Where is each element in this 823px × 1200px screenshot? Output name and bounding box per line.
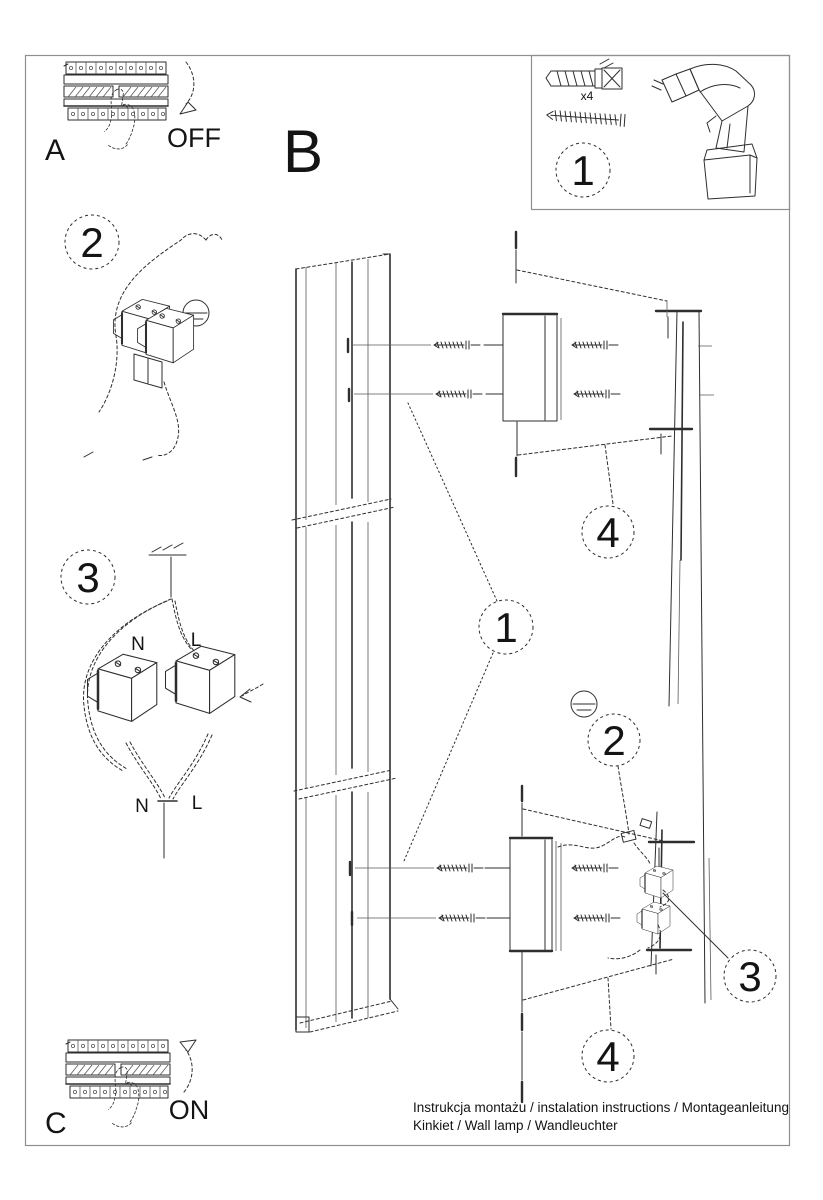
instruction-sheet: A OFF B x4 1	[0, 0, 823, 1200]
upper-mounting-assembly: 4	[434, 232, 714, 558]
section-label-c: C	[45, 1107, 67, 1140]
hand-icon	[108, 1067, 138, 1127]
section-label-a: A	[45, 134, 65, 167]
callout-4-lower: 4	[596, 1033, 619, 1080]
screw-lower-1	[437, 864, 483, 872]
page-border	[26, 56, 790, 1146]
callout-1-group: 1	[404, 403, 533, 861]
breaker-on-label: ON	[169, 1095, 210, 1125]
callout-1: 1	[494, 604, 517, 651]
dimension-lines	[352, 345, 436, 918]
screw-upper-1	[434, 341, 480, 349]
terminal-block-neutral	[88, 654, 157, 721]
label-live-top: L	[191, 630, 202, 651]
section-label-b: B	[283, 118, 323, 185]
flat-screwdriver-icon	[571, 691, 597, 717]
screw-upper-2	[436, 390, 482, 398]
section-a-power-off: A OFF	[45, 62, 221, 167]
label-neutral-top: N	[131, 634, 145, 655]
screw-upper-4	[574, 390, 620, 398]
callout-2-group: 2	[571, 691, 640, 834]
mounting-screw-illustration	[546, 109, 625, 126]
circuit-breaker-illustration	[66, 1040, 170, 1098]
lower-mounting-assembly: 4	[437, 786, 674, 1102]
wall-anchor-illustration	[546, 59, 622, 89]
wall-rail	[647, 311, 711, 1003]
main-assembly-diagram: 4 1 2	[292, 232, 776, 1102]
breaker-off-label: OFF	[167, 123, 221, 153]
screw-lower-4	[574, 914, 620, 922]
circuit-breaker-illustration	[64, 62, 168, 120]
callout-4-upper: 4	[596, 509, 619, 556]
label-neutral-bottom: N	[135, 796, 149, 817]
lower-bracket	[510, 838, 552, 951]
step2-number: 2	[80, 219, 103, 266]
section-c-power-on: C ON	[45, 1040, 209, 1140]
arrow-up-icon	[180, 1040, 196, 1092]
footer: Instrukcja montażu / instalation instruc…	[413, 1100, 789, 1133]
arrow-down-icon	[180, 62, 196, 114]
screw-upper-3	[572, 341, 618, 349]
screw-lower-2	[439, 914, 485, 922]
callout-3-group: 3	[663, 893, 776, 1002]
instruction-drawing: A OFF B x4 1	[0, 0, 823, 1200]
drill-illustration	[652, 64, 757, 199]
arrow-left-icon	[240, 684, 263, 702]
kit-step-number: 1	[571, 147, 594, 194]
anchor-quantity-label: x4	[581, 89, 594, 103]
screw-lower-3	[572, 864, 618, 872]
label-live-bottom: L	[192, 793, 203, 814]
hand-icon	[104, 89, 134, 149]
upper-bracket	[503, 314, 557, 421]
detail-step3-wiring: 3 N L N L	[61, 543, 263, 858]
footer-line-1: Instrukcja montażu / instalation instruc…	[413, 1100, 789, 1115]
footer-line-2: Kinkiet / Wall lamp / Wandleuchter	[413, 1118, 618, 1133]
detail-step2-wiring: 2	[65, 215, 222, 460]
kit-box-step1: x4 1	[532, 56, 790, 210]
step3-number: 3	[76, 554, 99, 601]
lamp-profile	[292, 254, 436, 1032]
callout-2: 2	[602, 717, 625, 764]
supply-cable-end	[149, 543, 186, 597]
callout-3: 3	[738, 953, 761, 1000]
wire-connector-illustration	[114, 299, 194, 388]
terminal-block-live	[166, 646, 235, 713]
